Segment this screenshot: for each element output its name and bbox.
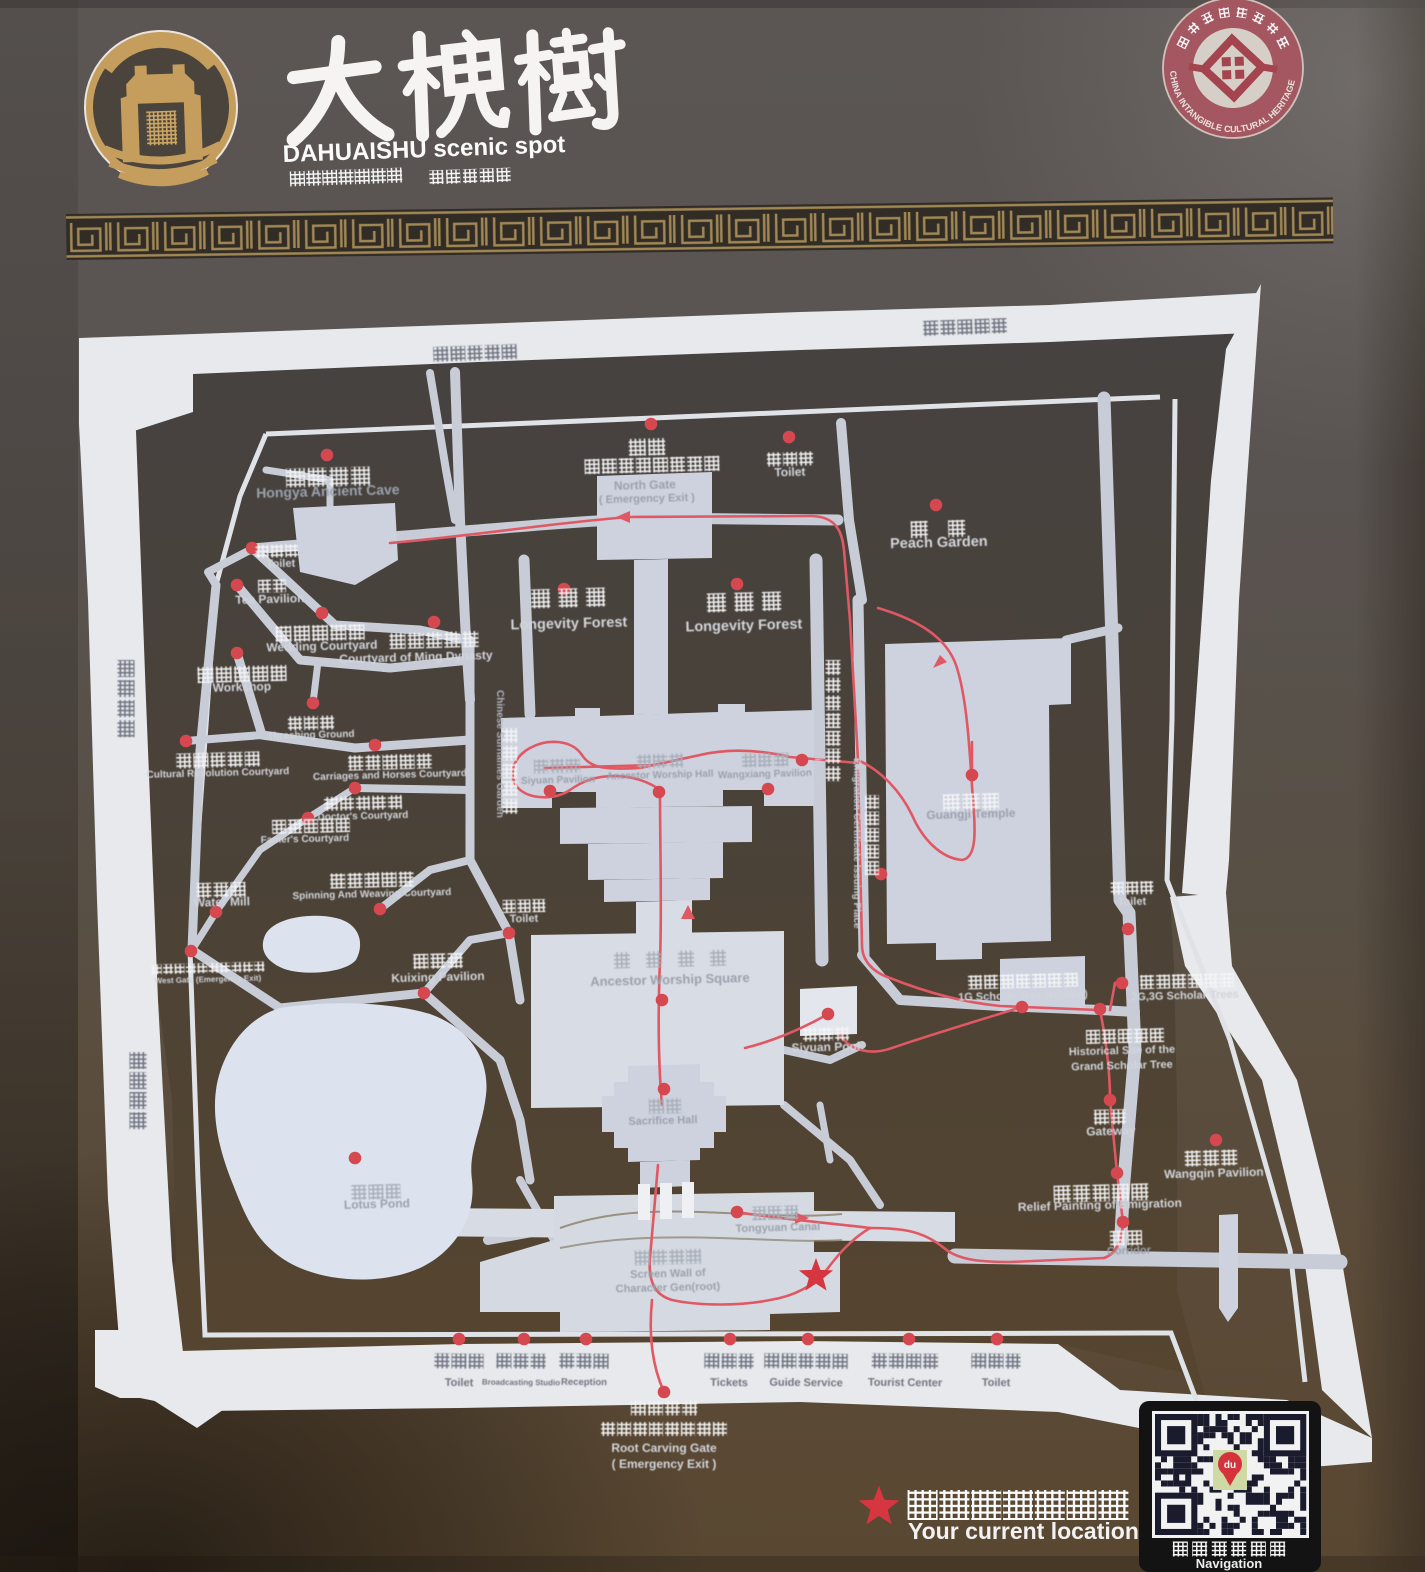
svg-text:Longevity Forest: Longevity Forest [685, 616, 802, 635]
svg-text:Wangqin Pavilion: Wangqin Pavilion [1164, 1165, 1264, 1182]
svg-text:Toilet: Toilet [445, 1377, 474, 1389]
svg-text:Corridor: Corridor [1107, 1244, 1152, 1257]
svg-text:North Gate: North Gate [614, 477, 677, 493]
svg-text:Tea Pavilion: Tea Pavilion [235, 591, 304, 607]
svg-text:Threshing Ground: Threshing Ground [267, 729, 354, 742]
svg-text:Famer's Courtyard: Famer's Courtyard [261, 833, 350, 846]
svg-text:Sacrifice Hall: Sacrifice Hall [628, 1114, 697, 1128]
svg-text:Tickets: Tickets [710, 1377, 748, 1389]
svg-text:Toilet: Toilet [774, 465, 805, 480]
svg-text:Workshop: Workshop [212, 679, 271, 695]
svg-text:Your current location: Your current location [908, 1518, 1139, 1544]
svg-text:Toilet: Toilet [1118, 896, 1147, 909]
svg-text:Siyuan Pool: Siyuan Pool [791, 1039, 860, 1055]
svg-text:Toilet: Toilet [510, 913, 539, 926]
svg-text:Toilet: Toilet [982, 1377, 1011, 1389]
svg-text:Kuixing Pavilion: Kuixing Pavilion [391, 969, 485, 985]
svg-text:Water Mill: Water Mill [194, 894, 251, 909]
svg-text:Longevity Forest: Longevity Forest [510, 614, 627, 633]
svg-text:Chinese Surnames Garden: Chinese Surnames Garden [494, 690, 505, 818]
svg-text:Navigation: Navigation [1196, 1556, 1263, 1571]
svg-text:Guide Service: Guide Service [769, 1377, 842, 1390]
svg-text:Emigration Certificate Issuing: Emigration Certificate Issuing Place [851, 758, 862, 929]
svg-text:Screen Wall of: Screen Wall of [630, 1267, 706, 1281]
svg-text:Reception: Reception [561, 1377, 607, 1388]
svg-text:Tongyuan Canal: Tongyuan Canal [735, 1221, 820, 1235]
svg-text:Broadcasting Studio: Broadcasting Studio [482, 1378, 560, 1388]
svg-text:Siyuan Pavilion: Siyuan Pavilion [521, 774, 595, 787]
svg-text:Gateway: Gateway [1086, 1123, 1136, 1138]
svg-text:Lotus Pond: Lotus Pond [344, 1196, 410, 1212]
svg-text:( Emergency Exit ): ( Emergency Exit ) [612, 1457, 717, 1471]
svg-text:du: du [1224, 1460, 1236, 1471]
svg-text:Toilet: Toilet [267, 558, 296, 571]
svg-text:Root Carving Gate: Root Carving Gate [611, 1441, 717, 1455]
svg-text:Guangji Temple: Guangji Temple [926, 806, 1016, 822]
svg-text:Exhibition Hall of Emigration: Exhibition Hall of Emigration Evidences [812, 658, 823, 847]
svg-text:Peach Garden: Peach Garden [890, 534, 988, 553]
svg-text:( Emergency Exit ): ( Emergency Exit ) [599, 492, 696, 507]
svg-text:Tourist Center: Tourist Center [868, 1377, 943, 1390]
